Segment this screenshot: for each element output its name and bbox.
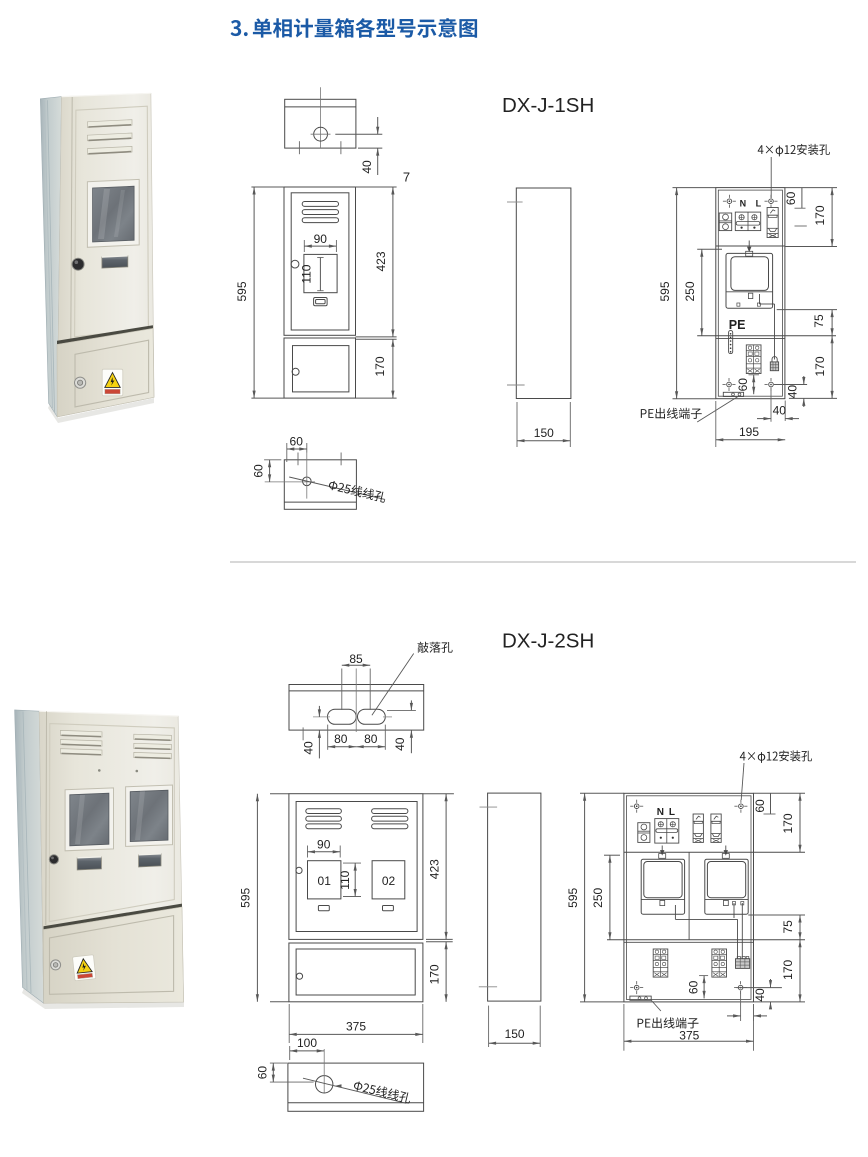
svg-text:60: 60: [290, 435, 304, 449]
svg-text:60: 60: [784, 191, 798, 205]
svg-text:110: 110: [300, 264, 314, 283]
svg-text:250: 250: [591, 887, 605, 907]
svg-text:L: L: [669, 807, 675, 818]
svg-text:DX-J-2SH: DX-J-2SH: [502, 630, 594, 653]
svg-text:N: N: [657, 807, 664, 818]
svg-text:40: 40: [753, 988, 767, 1002]
svg-text:250: 250: [683, 281, 697, 301]
svg-text:L: L: [756, 198, 762, 208]
svg-text:40: 40: [786, 385, 800, 399]
svg-text:170: 170: [781, 813, 795, 833]
svg-text:423: 423: [374, 251, 388, 271]
svg-text:60: 60: [251, 464, 265, 478]
svg-text:150: 150: [505, 1027, 525, 1041]
svg-text:02: 02: [382, 874, 396, 888]
svg-text:595: 595: [235, 281, 249, 301]
svg-text:170: 170: [427, 964, 441, 984]
svg-text:75: 75: [781, 920, 795, 934]
svg-text:80: 80: [334, 732, 348, 746]
svg-text:7: 7: [403, 170, 410, 185]
svg-text:40: 40: [393, 737, 407, 751]
svg-text:170: 170: [373, 356, 387, 376]
svg-text:N: N: [740, 198, 747, 208]
svg-text:595: 595: [238, 887, 252, 907]
svg-text:375: 375: [679, 1029, 699, 1043]
svg-text:40: 40: [301, 741, 315, 755]
svg-text:170: 170: [813, 205, 827, 225]
svg-text:90: 90: [317, 838, 331, 852]
svg-text:375: 375: [346, 1020, 366, 1034]
svg-text:01: 01: [318, 874, 332, 888]
svg-text:170: 170: [813, 356, 827, 376]
svg-text:40: 40: [773, 404, 787, 418]
svg-text:60: 60: [686, 980, 700, 994]
svg-text:100: 100: [297, 1036, 317, 1050]
svg-text:80: 80: [364, 732, 378, 746]
svg-text:595: 595: [658, 281, 672, 301]
svg-text:90: 90: [314, 232, 328, 246]
svg-text:423: 423: [427, 859, 441, 879]
svg-text:PE: PE: [729, 318, 746, 332]
svg-text:60: 60: [753, 799, 767, 813]
svg-text:75: 75: [812, 314, 826, 328]
svg-text:595: 595: [566, 887, 580, 907]
svg-text:40: 40: [360, 160, 374, 174]
svg-text:60: 60: [255, 1066, 269, 1080]
svg-text:60: 60: [736, 378, 750, 392]
svg-text:85: 85: [349, 652, 363, 666]
svg-text:DX-J-1SH: DX-J-1SH: [502, 94, 594, 117]
svg-text:195: 195: [739, 425, 759, 439]
svg-text:170: 170: [781, 959, 795, 979]
svg-text:110: 110: [338, 870, 352, 889]
svg-text:150: 150: [534, 426, 554, 440]
